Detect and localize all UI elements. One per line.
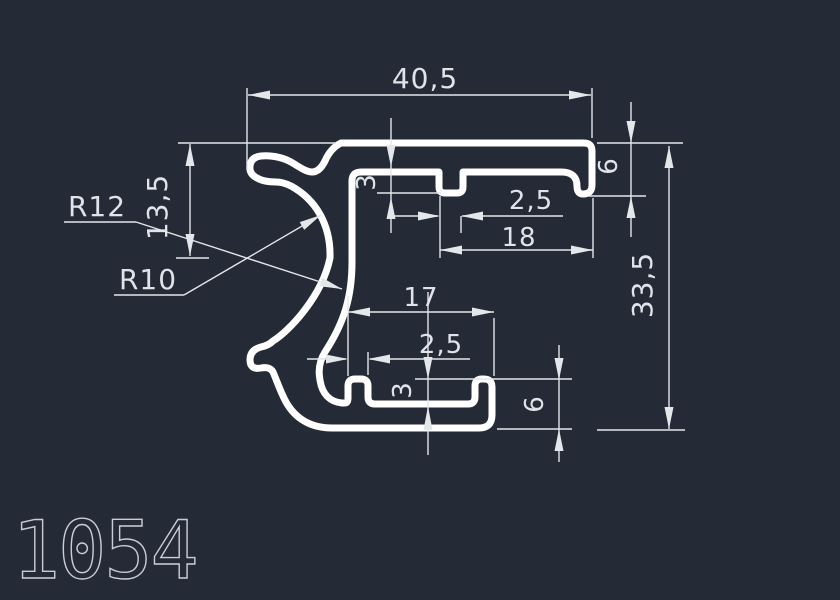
arrowhead-right — [326, 355, 348, 364]
arrowhead-down — [627, 121, 636, 143]
arrowhead-up — [665, 146, 674, 168]
dim-bottom-right-lip-height-label: 6 — [520, 395, 550, 413]
arrowhead-left — [368, 355, 390, 364]
arrowhead-up — [555, 429, 564, 451]
arrowhead-right — [418, 212, 440, 221]
arrowhead-down — [424, 357, 433, 379]
dim-overall-width-label: 40,5 — [392, 62, 458, 95]
dim-bottom-groove-depth-label: 3 — [388, 381, 418, 399]
dim-top-right-lip-height-label: 6 — [594, 157, 624, 175]
arrowhead-left — [248, 91, 270, 100]
dim-top-groove-width-label: 2,5 — [509, 186, 553, 216]
dim-overall-height-label: 33,5 — [626, 252, 659, 318]
arrowhead-down — [186, 234, 195, 256]
dim-top-groove-depth-label: 3 — [352, 173, 382, 191]
arrowhead-down — [555, 358, 564, 380]
cad-drawing: 40,5 13,5 R12 R10 3 2,5 — [0, 0, 840, 600]
arrowhead-right — [571, 246, 593, 255]
arrowhead-up — [186, 144, 195, 166]
dim-overall-width: 40,5 — [247, 62, 592, 170]
dim-bottom-channel-span-label: 17 — [403, 283, 438, 313]
cad-drawing-canvas: 40,5 13,5 R12 R10 3 2,5 — [0, 0, 840, 600]
arrowhead-left — [461, 212, 483, 221]
dim-bottom-lip-width-label: 2,5 — [419, 330, 463, 360]
dim-bottom-right-lip-height: 6 — [497, 345, 572, 462]
dim-inner-radius-label: R10 — [119, 263, 177, 296]
arrowhead-down — [665, 407, 674, 429]
dim-outer-radius-label: R12 — [68, 190, 126, 223]
arrowhead — [300, 215, 321, 230]
arrowhead-down — [387, 145, 396, 167]
dim-overall-height: 33,5 — [597, 146, 685, 430]
arrowhead-right — [569, 91, 591, 100]
dim-outer-radius: R12 — [64, 190, 342, 289]
dim-top-groove-width: 2,5 — [391, 186, 563, 258]
arrowhead-left — [440, 246, 462, 255]
arrowhead-left — [348, 308, 370, 317]
drawing-number-label: 1054 — [12, 504, 197, 597]
arrowhead-up — [424, 406, 433, 430]
arrowhead-right — [472, 308, 494, 317]
dim-top-groove-to-edge-label: 18 — [501, 223, 536, 253]
leader-line — [184, 215, 321, 295]
arrowhead-up — [627, 196, 636, 218]
dim-left-top-offset-label: 13,5 — [141, 174, 174, 240]
